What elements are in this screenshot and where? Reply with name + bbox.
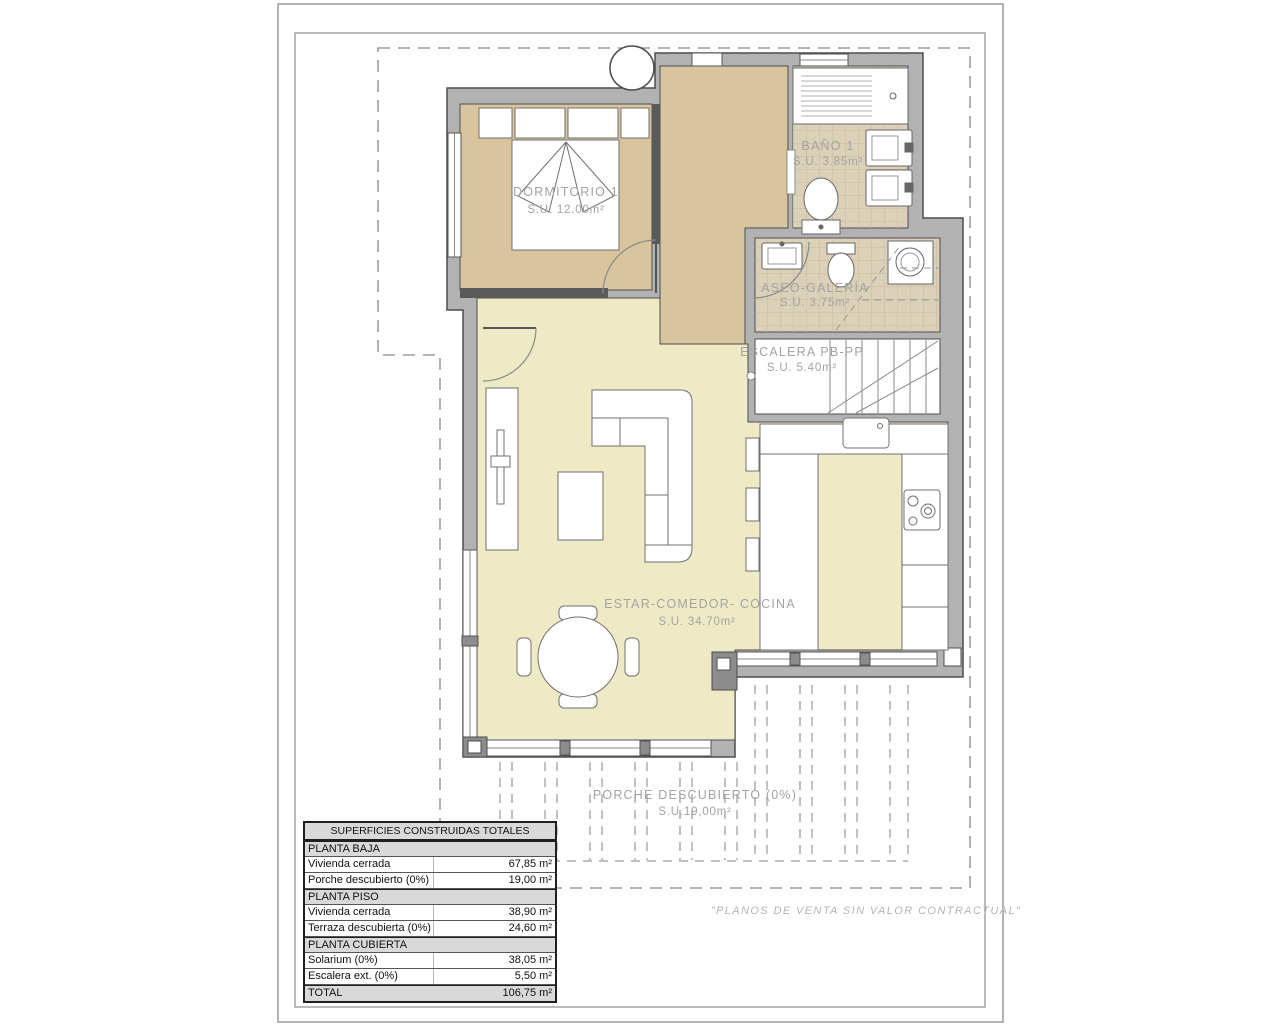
window-bedroom-west [448, 133, 461, 257]
table-section-row: PLANTA PISO [305, 889, 555, 905]
cooktop [904, 490, 940, 530]
row-label: Vivienda cerrada [305, 905, 433, 920]
bar-stools [746, 438, 759, 571]
window-living-south [487, 740, 711, 756]
row-label: Terraza descubierta (0%) [305, 921, 433, 936]
window-bath-north [800, 54, 848, 66]
dining-chair [625, 638, 639, 676]
kitchen-peninsula [760, 454, 818, 650]
wardrobe-and-nightstands [479, 108, 649, 138]
tv-unit [486, 388, 518, 550]
dining-chair [517, 638, 531, 676]
shower [793, 68, 908, 124]
coffee-table [558, 472, 603, 540]
kitchen-counter-right [902, 454, 948, 650]
section-label: PLANTA PISO [305, 890, 555, 904]
table-row: Vivienda cerrada 67,85 m² [305, 857, 555, 873]
bath-sink [866, 170, 913, 206]
table-row: Porche descubierto (0%) 19,00 m² [305, 873, 555, 889]
row-value: 19,00 m² [433, 873, 555, 888]
kitchen-sink [843, 418, 889, 448]
table-section-row: PLANTA CUBIERTA [305, 937, 555, 953]
floor-plan-page: DORMITORIO 1 S.U. 12.00m² BAÑO 1 S.U. 3.… [0, 0, 1280, 1024]
surfaces-table-title: SUPERFICIES CONSTRUIDAS TOTALES [305, 823, 555, 841]
table-total-row: TOTAL 106,75 m² [305, 985, 555, 1001]
table-row: Solarium (0%) 38,05 m² [305, 953, 555, 969]
room-name: BAÑO 1 [801, 139, 854, 153]
aseo-sink [762, 242, 802, 269]
row-label: Solarium (0%) [305, 953, 433, 968]
row-value: 24,60 m² [433, 921, 555, 936]
table-row: Vivienda cerrada 38,90 m² [305, 905, 555, 921]
row-label: Porche descubierto (0%) [305, 873, 433, 888]
room-name: ESTAR-COMEDOR- COCINA [604, 597, 796, 611]
room-area: S.U. 5.40m² [767, 362, 837, 374]
window-kitchen-south [737, 652, 937, 666]
section-label: PLANTA CUBIERTA [305, 938, 555, 952]
column-step [712, 652, 737, 690]
row-value: 38,05 m² [433, 953, 555, 968]
row-value: 5,50 m² [433, 969, 555, 984]
table-row: Escalera ext. (0%) 5,50 m² [305, 969, 555, 985]
room-name: ASEO-GALERÍA [761, 280, 869, 295]
room-area: S.U. 34.70m² [658, 616, 735, 628]
row-value: 38,90 m² [433, 905, 555, 920]
table-row: Terraza descubierta (0%) 24,60 m² [305, 921, 555, 937]
room-area: S.U. 12.00m² [527, 204, 604, 216]
room-area: S.U. 3.75m² [780, 297, 850, 309]
window-living-west [462, 550, 478, 740]
column-southwest [463, 737, 487, 757]
washing-machine [888, 241, 933, 284]
handrail-start [747, 372, 755, 380]
toilet [802, 178, 840, 234]
room-area: S.U. 3.85m² [793, 156, 863, 168]
column-southeast [944, 648, 961, 666]
section-label: PLANTA BAJA [305, 842, 555, 856]
row-value: 67,85 m² [433, 857, 555, 872]
wall-niche [692, 53, 722, 66]
bath-sink [866, 130, 913, 166]
room-area: S.U.19,00m² [658, 806, 731, 818]
disclaimer-text: "PLANOS DE VENTA SIN VALOR CONTRACTUAL" [711, 905, 1022, 917]
total-value: 106,75 m² [433, 986, 555, 1001]
row-label: Escalera ext. (0%) [305, 969, 433, 984]
table-section-row: PLANTA BAJA [305, 841, 555, 857]
floor-plan-drawing: DORMITORIO 1 S.U. 12.00m² BAÑO 1 S.U. 3.… [0, 0, 1280, 1024]
total-label: TOTAL [305, 986, 433, 1001]
room-name: PORCHE DESCUBIERTO (0%) [593, 788, 797, 802]
room-name: ESCALERA PB-PP [740, 345, 864, 359]
room-name: DORMITORIO 1 [513, 185, 619, 199]
surfaces-table: SUPERFICIES CONSTRUIDAS TOTALES PLANTA B… [303, 821, 557, 1003]
round-column [610, 46, 654, 90]
row-label: Vivienda cerrada [305, 857, 433, 872]
